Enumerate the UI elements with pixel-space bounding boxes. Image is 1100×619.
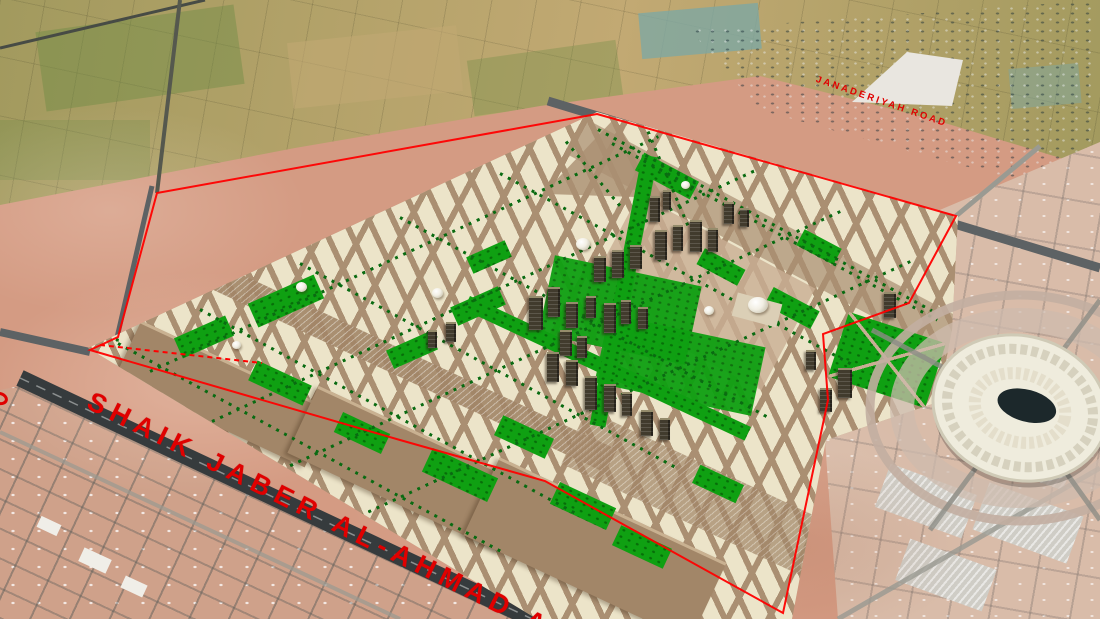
aerial-map-view[interactable]: SHAIK JABER AL-AHMAD AL - S JANADERIYAH … — [0, 0, 1100, 619]
red-site-boundary — [90, 114, 956, 613]
stadium — [870, 295, 1100, 530]
stadium-and-boundary — [0, 0, 1100, 619]
